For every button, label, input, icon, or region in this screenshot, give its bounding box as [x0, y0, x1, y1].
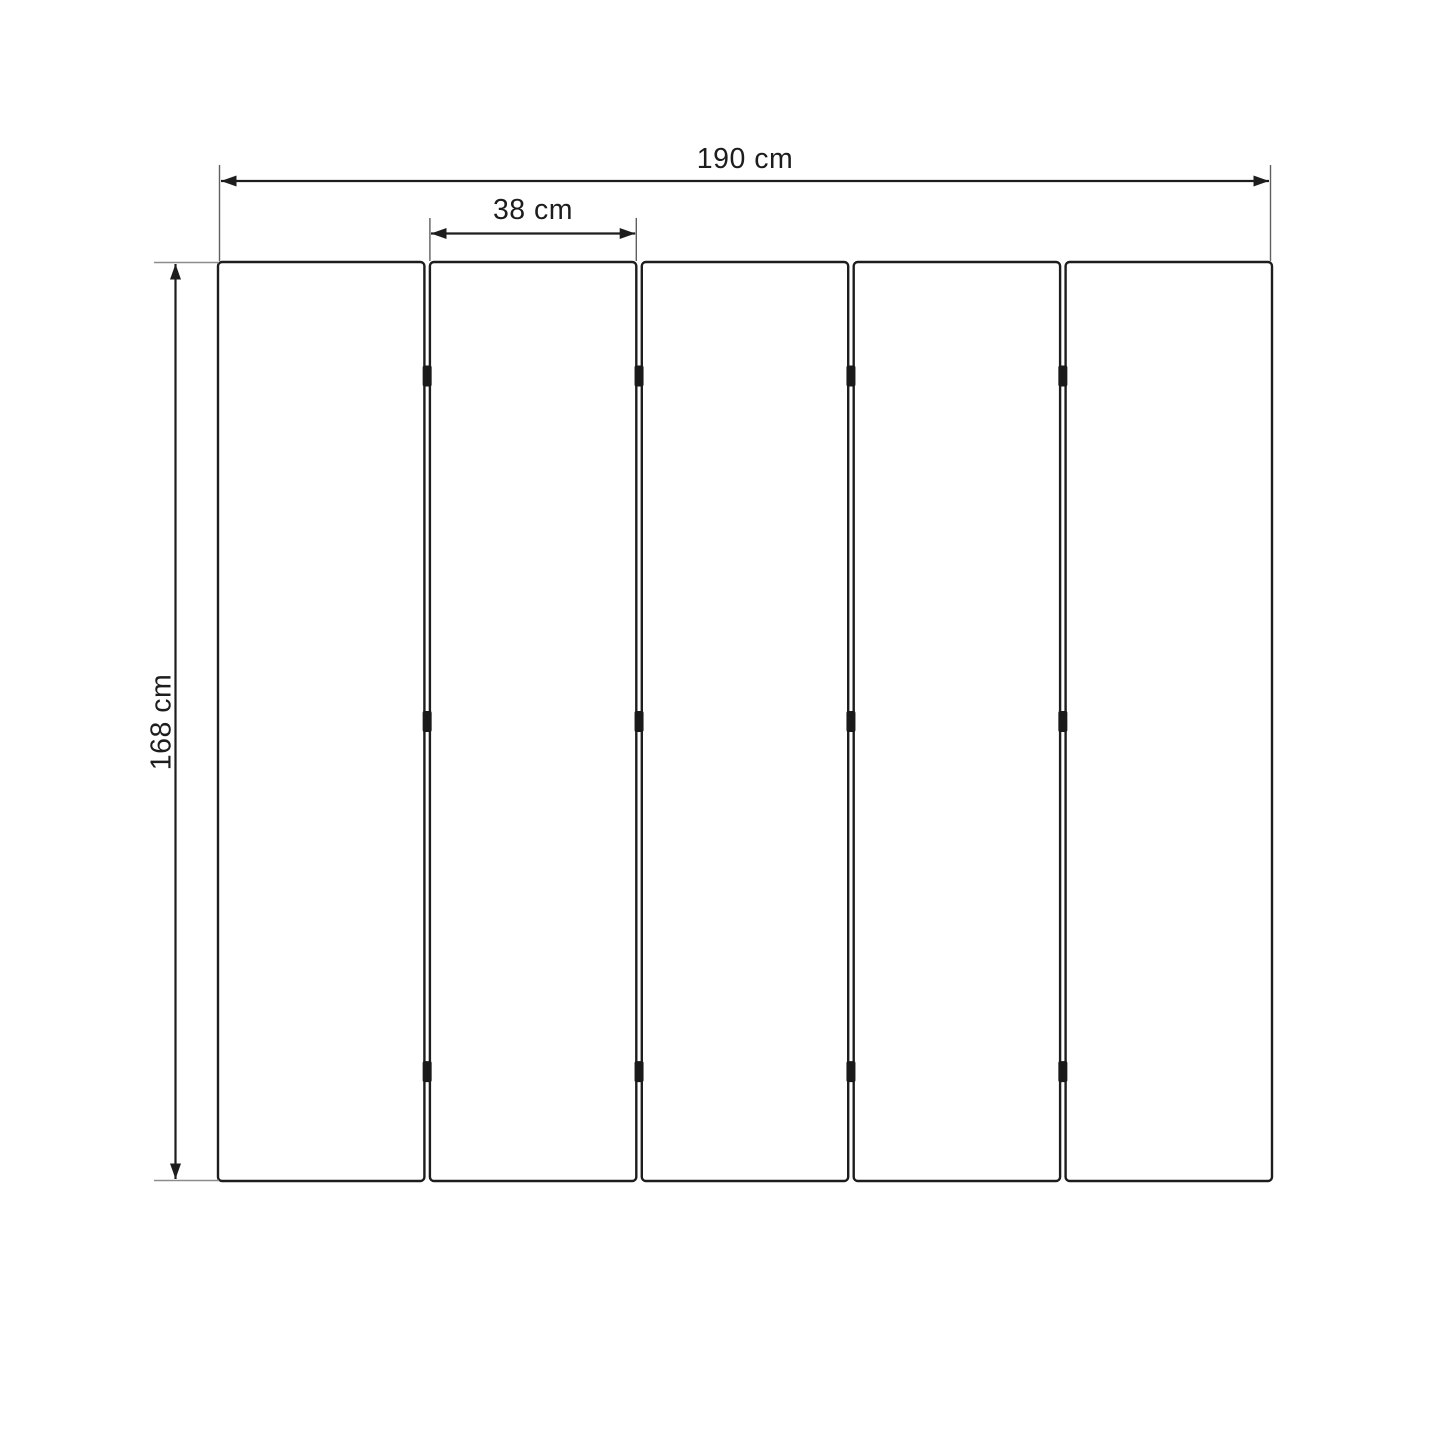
screen-panel-4 [854, 262, 1060, 1181]
hinge-gap1-row2 [423, 711, 432, 732]
dimension-height: 168 cm [146, 263, 220, 1181]
hinge-gap4-row3 [1058, 1061, 1067, 1082]
dimension-total-width: 190 cm [220, 143, 1271, 261]
screen-panel-5 [1066, 262, 1272, 1181]
hinge-gap2-row2 [635, 711, 644, 732]
hinge-gap1-row1 [423, 365, 432, 386]
dimension-label-panel-width: 38 cm [493, 194, 573, 226]
dimension-diagram: 190 cm 38 cm 168 cm [0, 0, 1445, 1445]
hinge-gap3-row2 [846, 711, 855, 732]
hinge-gap3-row1 [846, 365, 855, 386]
dimension-panel-width: 38 cm [430, 194, 636, 261]
hinge-gap3-row3 [846, 1061, 855, 1082]
hinge-gap2-row1 [635, 365, 644, 386]
hinge-gap4-row1 [1058, 365, 1067, 386]
dimension-label-height: 168 cm [146, 674, 178, 770]
panels-layer [218, 262, 1272, 1181]
hinge-gap4-row2 [1058, 711, 1067, 732]
screen-panel-2 [430, 262, 636, 1181]
screen-panel-3 [642, 262, 848, 1181]
screen-panel-1 [218, 262, 424, 1181]
dimension-label-total-width: 190 cm [697, 143, 793, 175]
diagram-canvas: 190 cm 38 cm 168 cm [0, 0, 1445, 1445]
hinge-gap1-row3 [423, 1061, 432, 1082]
hinge-gap2-row3 [635, 1061, 644, 1082]
